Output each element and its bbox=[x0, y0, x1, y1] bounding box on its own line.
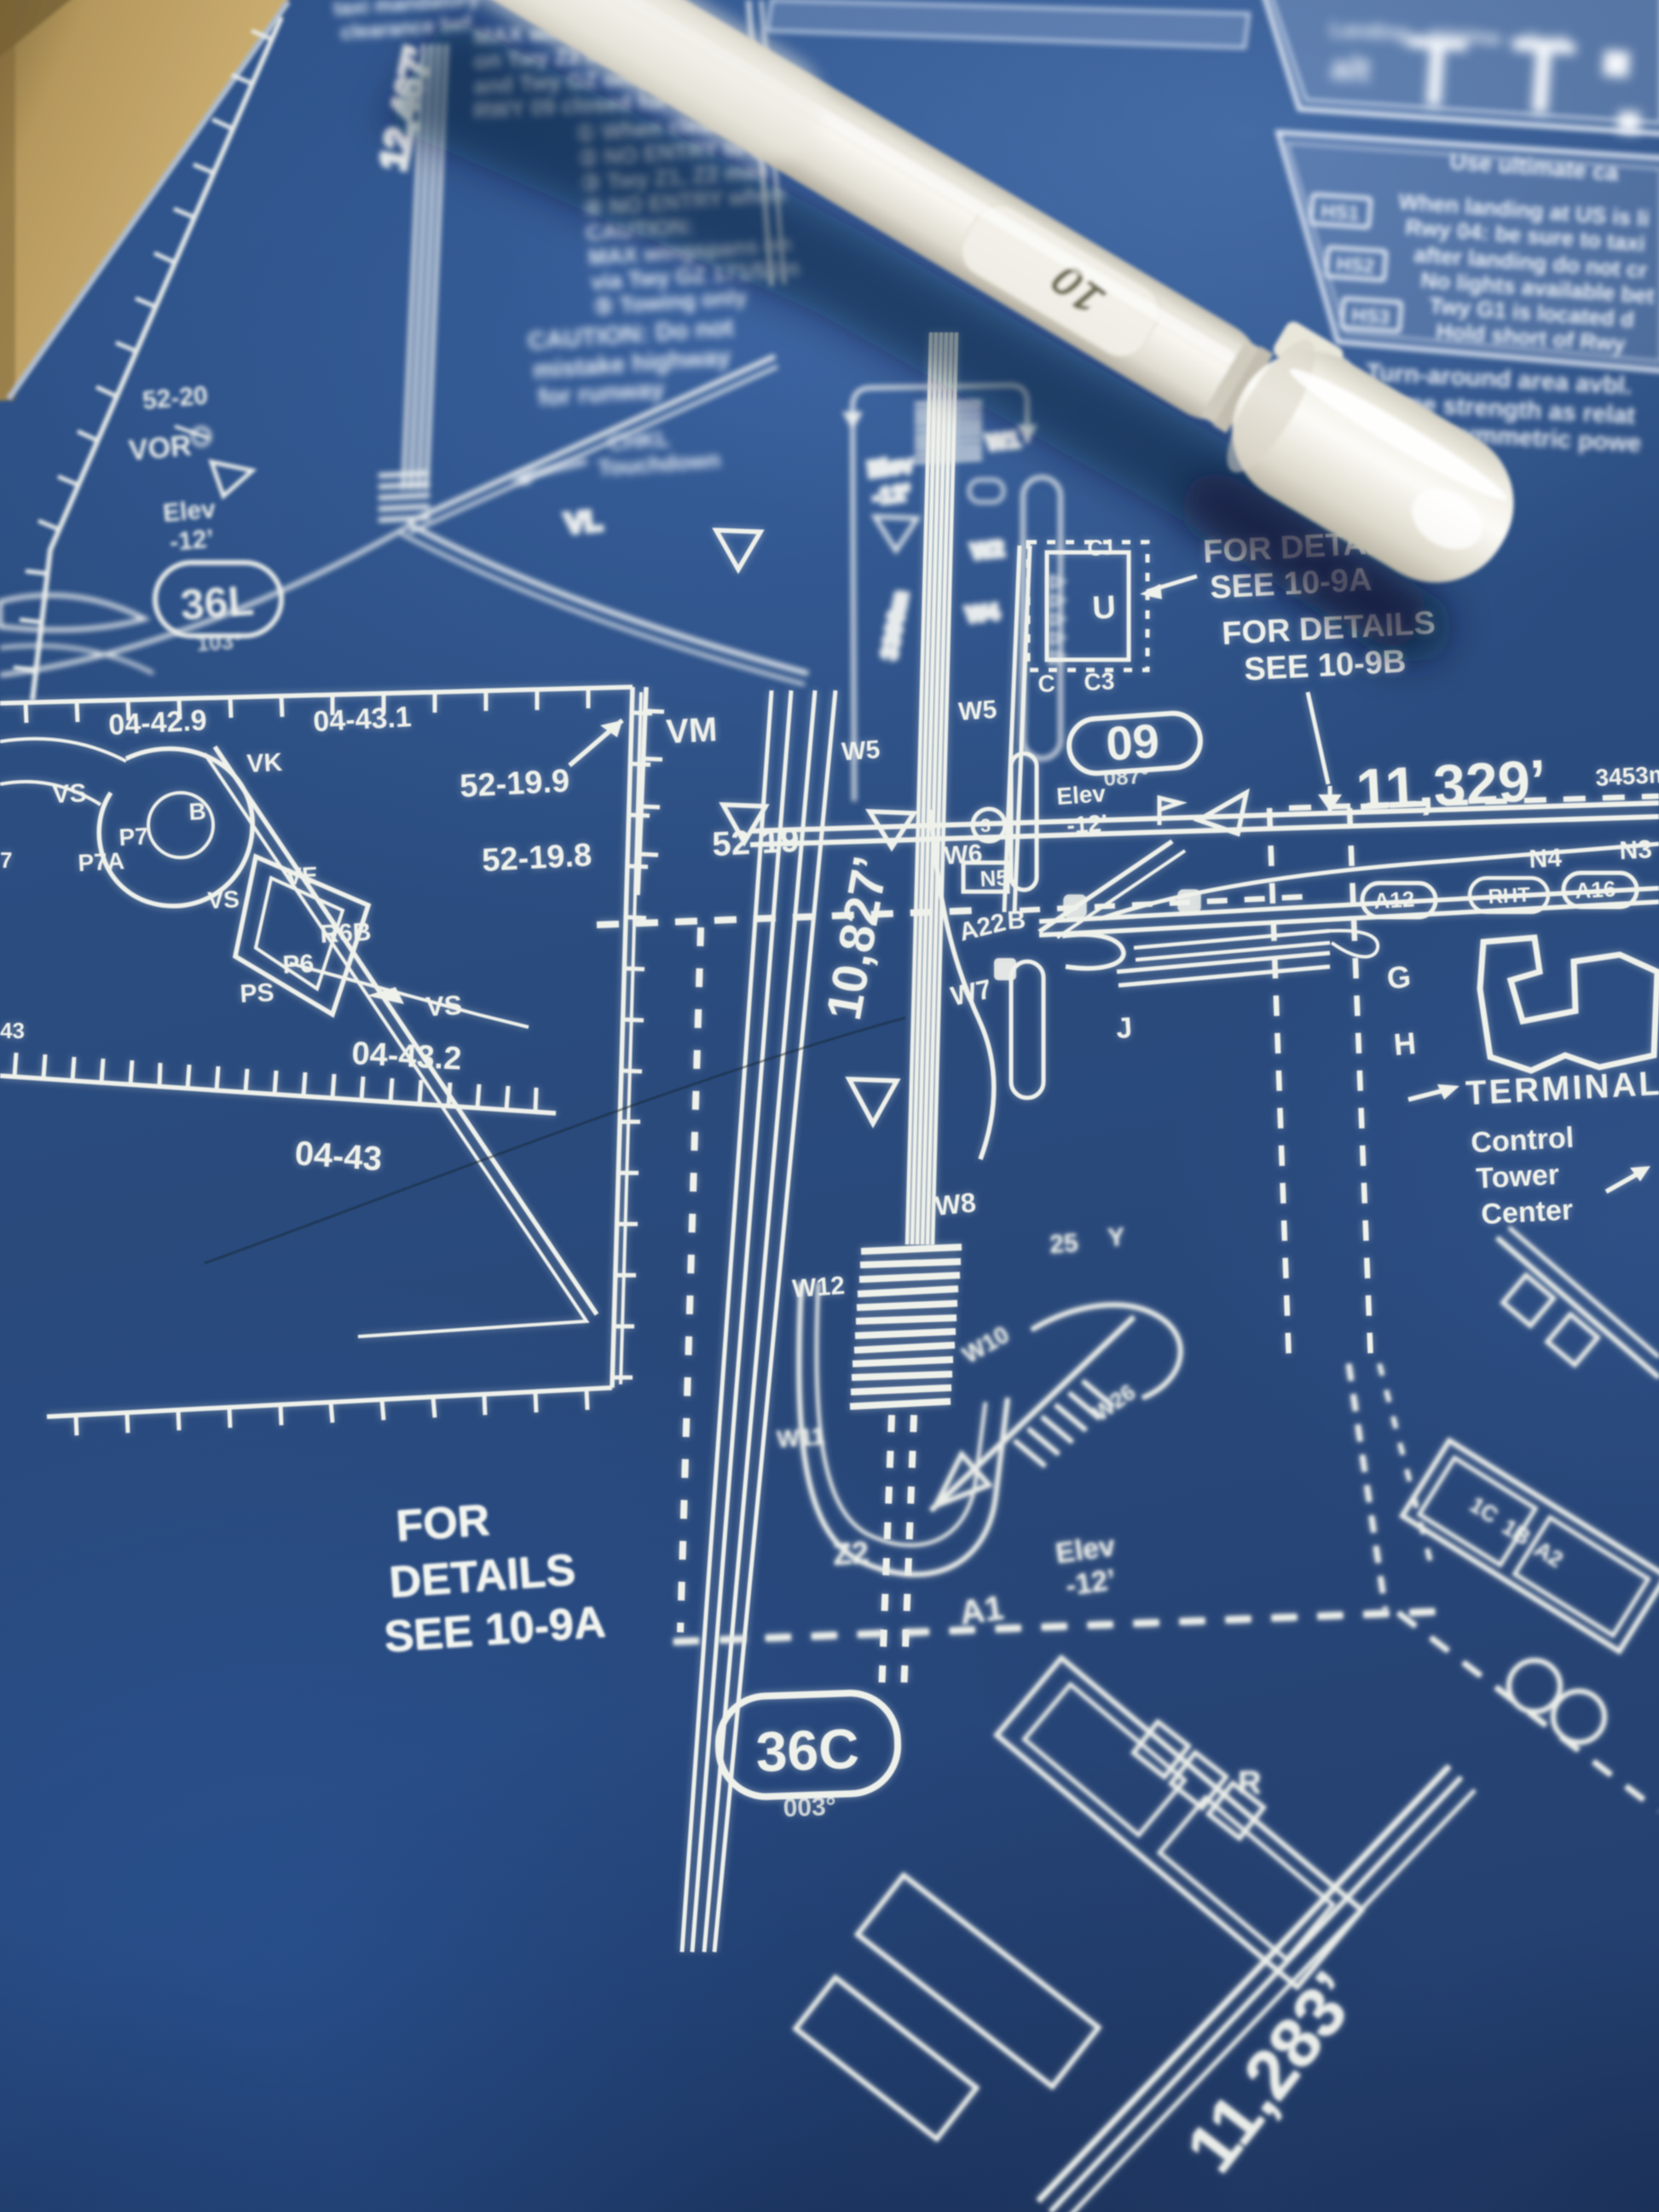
svg-text:J: J bbox=[1115, 1012, 1134, 1045]
svg-text:1C: 1C bbox=[1465, 1492, 1503, 1528]
svg-text:DETAILS: DETAILS bbox=[388, 1545, 577, 1608]
svg-text:T: T bbox=[1402, 14, 1470, 130]
svg-text:Y: Y bbox=[1107, 1223, 1125, 1252]
svg-text:G: G bbox=[1385, 959, 1412, 996]
svg-text:alt: alt bbox=[1329, 49, 1372, 89]
svg-text:04-42.9: 04-42.9 bbox=[107, 704, 207, 742]
svg-text:7: 7 bbox=[0, 847, 12, 873]
svg-text:PS: PS bbox=[240, 979, 275, 1008]
svg-text:W5: W5 bbox=[841, 736, 881, 766]
svg-text:04-43: 04-43 bbox=[293, 1135, 383, 1178]
svg-text:P6: P6 bbox=[282, 950, 315, 979]
svg-text:36L: 36L bbox=[179, 576, 256, 629]
svg-text:■: ■ bbox=[1598, 32, 1634, 92]
svg-text:Elev: Elev bbox=[1055, 780, 1107, 810]
svg-text:Z2: Z2 bbox=[832, 1534, 870, 1572]
svg-text:-12’: -12’ bbox=[169, 525, 215, 557]
svg-text:C3: C3 bbox=[1084, 667, 1115, 696]
svg-text:VE: VE bbox=[286, 862, 319, 890]
svg-text:VOR: VOR bbox=[127, 430, 193, 467]
svg-text:43: 43 bbox=[0, 1018, 25, 1043]
svg-text:W10: W10 bbox=[958, 1321, 1014, 1369]
svg-text:36C: 36C bbox=[754, 1717, 860, 1783]
svg-text:Tower: Tower bbox=[1475, 1158, 1559, 1195]
svg-text:11,283’: 11,283’ bbox=[1172, 1958, 1374, 2186]
svg-text:A16: A16 bbox=[1575, 876, 1616, 904]
svg-text:N3: N3 bbox=[1619, 835, 1653, 865]
svg-text:VS: VS bbox=[425, 990, 463, 1022]
svg-text:3300m: 3300m bbox=[876, 589, 913, 661]
svg-text:HS2: HS2 bbox=[1336, 252, 1375, 277]
svg-text:-12’: -12’ bbox=[871, 479, 913, 510]
svg-text:VS: VS bbox=[52, 779, 88, 809]
svg-text:Elev: Elev bbox=[866, 451, 916, 482]
svg-text:H: H bbox=[1392, 1025, 1417, 1062]
svg-text:52-19.9: 52-19.9 bbox=[459, 763, 570, 805]
svg-text:P7A: P7A bbox=[78, 847, 125, 876]
svg-text:HS3: HS3 bbox=[1351, 303, 1390, 328]
svg-text:W5: W5 bbox=[957, 696, 997, 726]
svg-text:R6B: R6B bbox=[320, 918, 373, 949]
svg-text:VK: VK bbox=[246, 748, 284, 778]
svg-text:HS1: HS1 bbox=[1321, 199, 1361, 224]
svg-text:10,827’: 10,827’ bbox=[816, 852, 899, 1025]
svg-text:VS: VS bbox=[207, 886, 240, 914]
svg-text:Elev: Elev bbox=[162, 495, 217, 528]
svg-text:B: B bbox=[1007, 906, 1026, 935]
svg-text:VM: VM bbox=[665, 711, 718, 751]
svg-text:087°: 087° bbox=[1103, 762, 1151, 791]
svg-text:W7: W7 bbox=[948, 973, 994, 1012]
svg-text:003°: 003° bbox=[783, 1793, 836, 1822]
svg-text:11,329’: 11,329’ bbox=[1355, 748, 1548, 823]
svg-text:C: C bbox=[1038, 670, 1056, 697]
svg-text:U: U bbox=[1091, 590, 1117, 627]
svg-text:3453m: 3453m bbox=[1595, 760, 1659, 791]
svg-text:N4: N4 bbox=[1529, 844, 1563, 874]
svg-text:W4: W4 bbox=[964, 598, 1000, 627]
svg-text:R: R bbox=[1238, 1765, 1261, 1801]
svg-text:52-19.8: 52-19.8 bbox=[481, 837, 592, 879]
svg-text:W1: W1 bbox=[985, 426, 1020, 455]
svg-text:P7: P7 bbox=[118, 823, 149, 851]
svg-text:-12’: -12’ bbox=[1064, 1563, 1118, 1603]
svg-text:25: 25 bbox=[1049, 1229, 1079, 1259]
svg-text:B: B bbox=[188, 798, 207, 825]
svg-text:04-43.2: 04-43.2 bbox=[351, 1036, 463, 1077]
svg-text:TERMINAL: TERMINAL bbox=[1465, 1065, 1659, 1112]
svg-text:FOR: FOR bbox=[395, 1495, 492, 1551]
svg-text:W26: W26 bbox=[1088, 1379, 1140, 1426]
svg-text:VL: VL bbox=[564, 505, 604, 540]
svg-text:T: T bbox=[1506, 16, 1578, 138]
svg-text:W2: W2 bbox=[969, 535, 1005, 564]
svg-text:52-20: 52-20 bbox=[142, 381, 209, 415]
svg-text:Center: Center bbox=[1480, 1193, 1574, 1231]
svg-text:09: 09 bbox=[1104, 713, 1161, 771]
svg-text:103°: 103° bbox=[196, 627, 244, 656]
svg-text:A12: A12 bbox=[1373, 887, 1415, 914]
svg-text:W8: W8 bbox=[934, 1187, 978, 1222]
svg-text:A1: A1 bbox=[957, 1589, 1006, 1632]
svg-text:SEE 10-9A: SEE 10-9A bbox=[383, 1597, 608, 1662]
svg-text:Control: Control bbox=[1470, 1122, 1575, 1159]
svg-text:■: ■ bbox=[1614, 95, 1644, 147]
svg-text:04-43.1: 04-43.1 bbox=[312, 701, 412, 738]
svg-text:RHT: RHT bbox=[1488, 883, 1531, 909]
svg-text:W11: W11 bbox=[776, 1423, 825, 1453]
svg-text:N5: N5 bbox=[980, 864, 1009, 892]
svg-text:C1: C1 bbox=[1087, 534, 1117, 561]
